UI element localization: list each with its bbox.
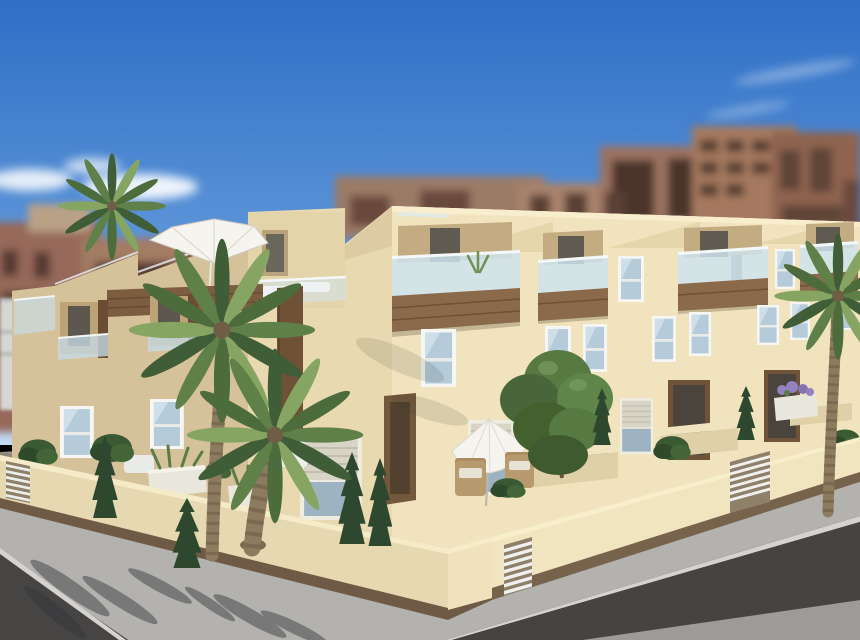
balcony-bay-1 — [538, 230, 608, 324]
corner-balcony — [392, 222, 520, 337]
balcony-bay-2 — [678, 225, 768, 314]
architectural-render-image — [0, 0, 860, 640]
gate-left — [6, 461, 30, 503]
